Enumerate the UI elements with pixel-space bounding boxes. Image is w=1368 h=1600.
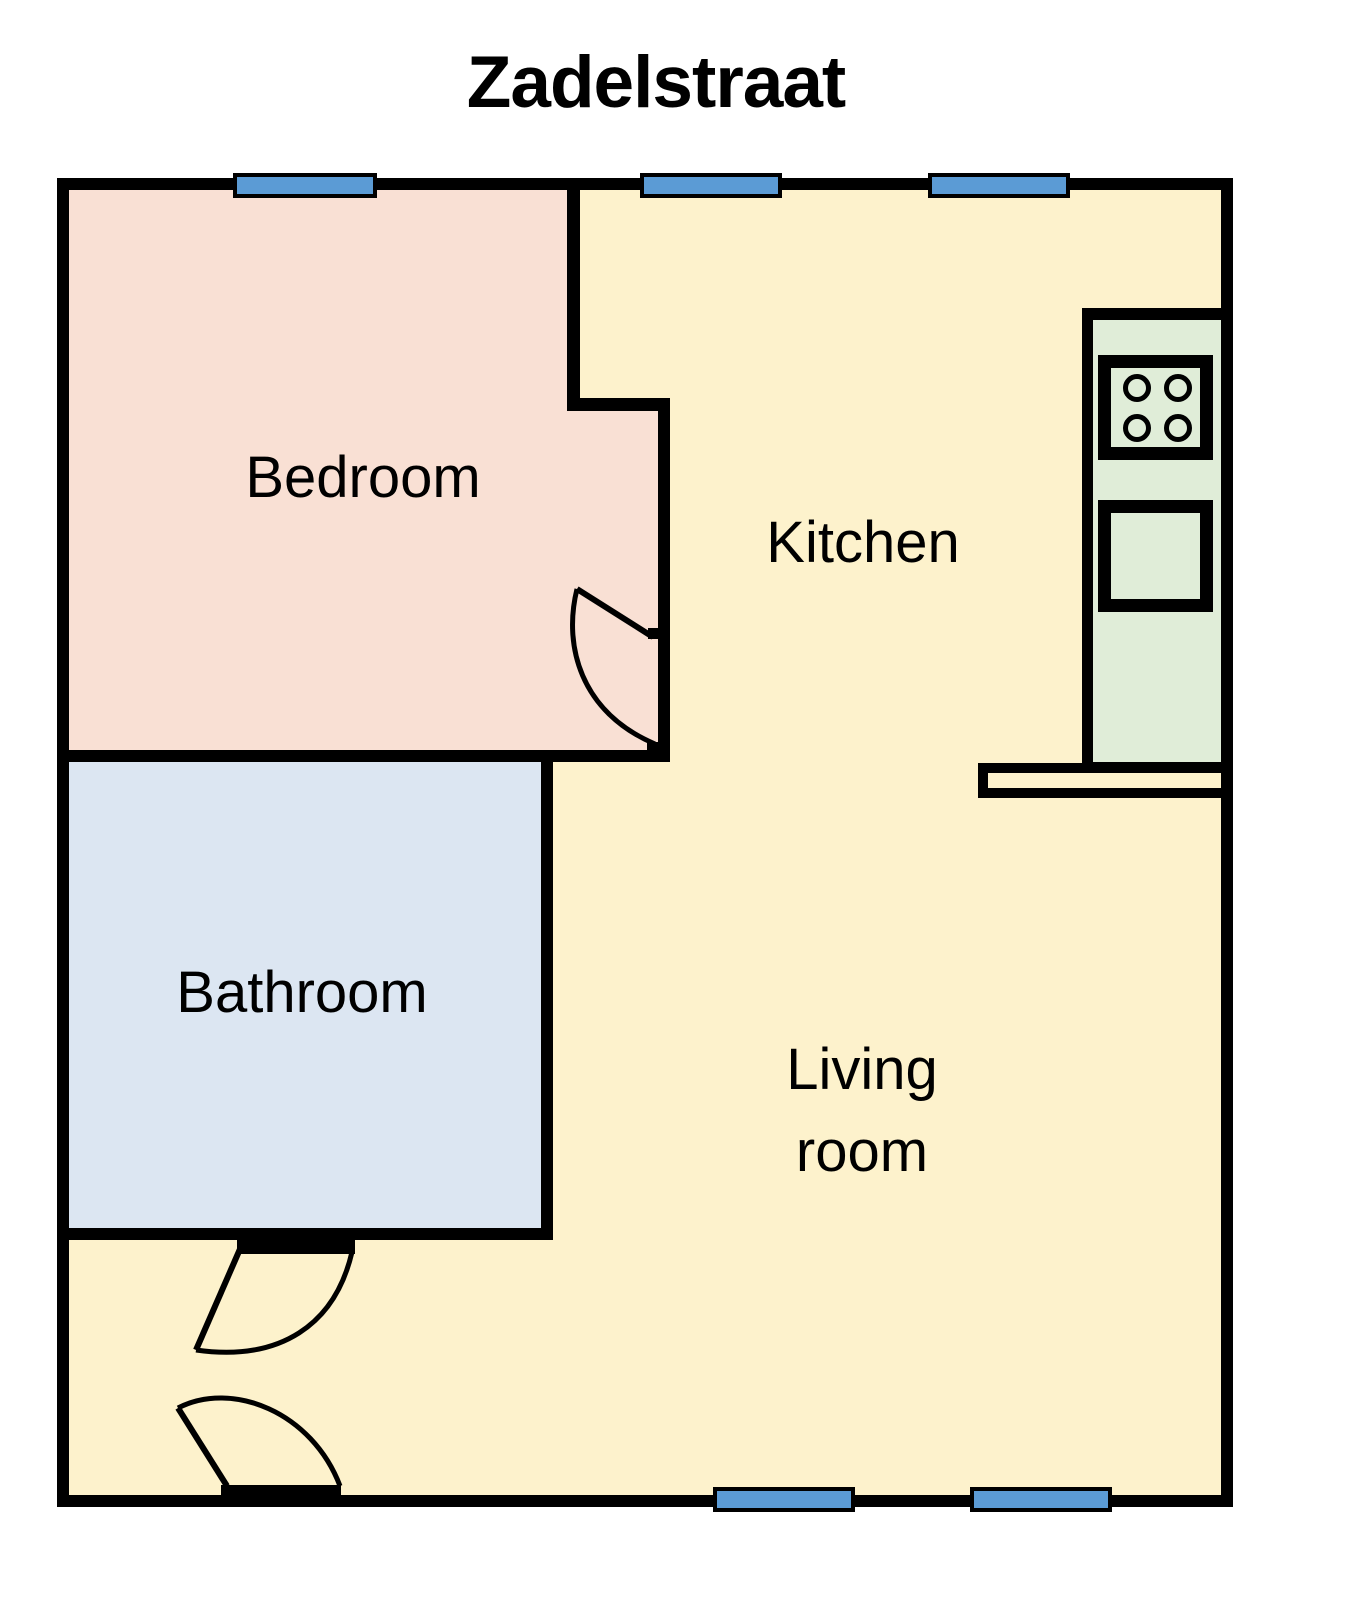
wall-bedroom-notch (567, 398, 670, 411)
living-room-label-line1: Living (786, 1029, 938, 1111)
wall-bathroom-right (541, 762, 553, 1240)
bathroom-label: Bathroom (176, 964, 427, 1022)
wall-outer-left (57, 178, 69, 1507)
stove-burner-icon (1164, 414, 1192, 442)
living-room-label: Living room (786, 1029, 938, 1193)
counter-peninsula (988, 773, 1221, 788)
kitchen-label: Kitchen (766, 514, 959, 572)
living-room-label-line2: room (786, 1111, 938, 1193)
page-title: Zadelstraat (467, 46, 846, 119)
bedroom-door-jamb (648, 628, 670, 639)
window-kitchen-right (928, 173, 1070, 198)
stove-burner-icon (1123, 374, 1151, 402)
window-living-room-left (713, 1487, 855, 1512)
window-bedroom (233, 173, 377, 198)
wall-bedroom-kitchen-upper (567, 190, 580, 411)
oven-icon (1098, 500, 1213, 612)
bedroom-label: Bedroom (245, 449, 480, 507)
wall-outer-right (1221, 178, 1233, 1507)
bedroom-floor-extension (580, 411, 658, 762)
entrance-door (221, 1485, 341, 1506)
bathroom-door (237, 1236, 355, 1254)
window-kitchen-left (640, 173, 782, 198)
wall-bedroom-bottom (57, 750, 670, 762)
window-living-room-right (970, 1487, 1112, 1512)
floor-plan: Zadelstraat (0, 0, 1368, 1600)
stove-burner-icon (1123, 414, 1151, 442)
stove-icon (1098, 355, 1213, 460)
wall-bedroom-right (658, 398, 670, 762)
stove-burner-icon (1164, 374, 1192, 402)
